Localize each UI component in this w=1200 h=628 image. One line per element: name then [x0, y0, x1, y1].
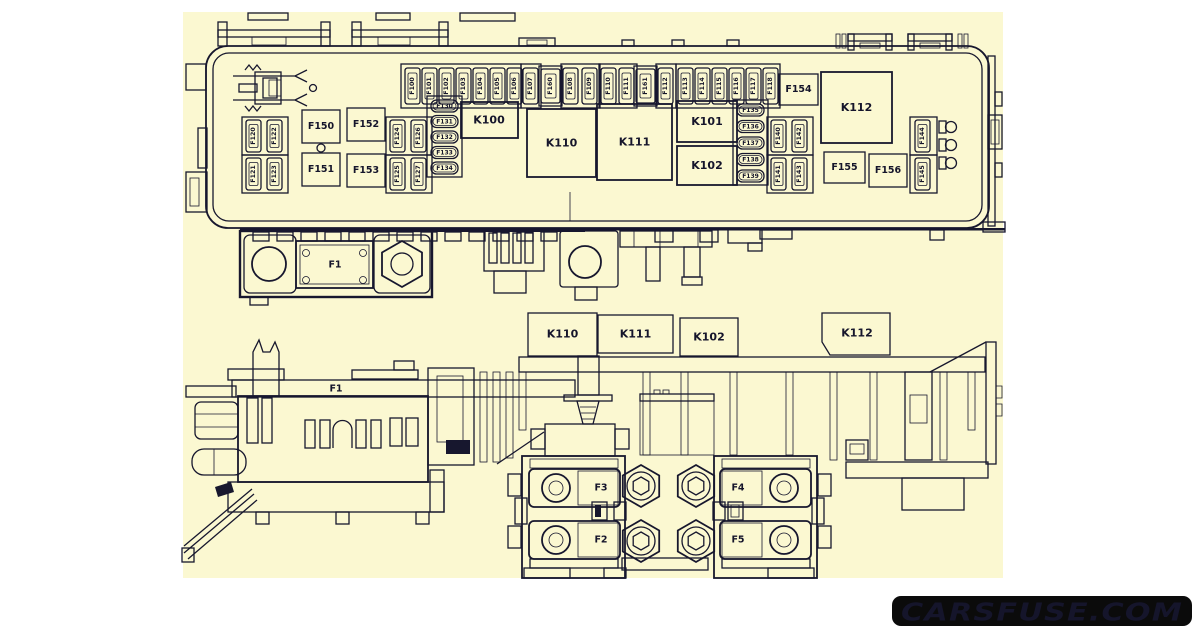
svg-text:F121: F121	[250, 165, 257, 182]
svg-text:F105: F105	[494, 77, 501, 94]
watermark-badge: CARSFUSE.COM	[892, 596, 1192, 627]
relay-k111-label: K111	[619, 136, 651, 149]
svg-text:F118: F118	[767, 77, 774, 94]
svg-text:F131: F131	[436, 119, 453, 126]
svg-text:F116: F116	[733, 77, 740, 95]
midi-fuse-f4-label: F4	[731, 483, 744, 494]
svg-text:F100: F100	[409, 77, 416, 95]
svg-text:F124: F124	[394, 127, 401, 145]
svg-text:F144: F144	[919, 127, 926, 145]
svg-text:F133: F133	[436, 150, 453, 157]
side-relay-k111-label: K111	[620, 328, 652, 341]
svg-text:F106: F106	[511, 77, 518, 95]
svg-text:F113: F113	[682, 77, 689, 94]
svg-text:F142: F142	[796, 127, 803, 144]
svg-text:F161: F161	[642, 77, 649, 94]
svg-text:F115: F115	[716, 77, 723, 94]
fuse-f152-label: F152	[353, 119, 379, 130]
side-relay-k102-label: K102	[693, 331, 725, 344]
svg-text:F114: F114	[699, 77, 706, 95]
svg-text:F141: F141	[775, 165, 782, 182]
svg-text:F126: F126	[415, 127, 422, 145]
fuse-f155-label: F155	[831, 162, 857, 173]
svg-text:F109: F109	[586, 77, 593, 94]
relay-k112-label: K112	[841, 101, 873, 114]
svg-text:F125: F125	[394, 165, 401, 182]
svg-text:F107: F107	[527, 77, 534, 94]
svg-text:F132: F132	[436, 134, 453, 141]
svg-text:F138: F138	[742, 157, 759, 164]
svg-text:F160: F160	[547, 77, 554, 95]
svg-text:F127: F127	[415, 165, 422, 182]
svg-text:F122: F122	[271, 127, 278, 144]
fuse-f154-label: F154	[785, 84, 812, 95]
svg-text:F110: F110	[605, 77, 612, 95]
svg-text:F134: F134	[436, 165, 453, 172]
side-relay-k110-label: K110	[547, 328, 579, 341]
svg-text:F145: F145	[919, 165, 926, 182]
fuse-diagram-page: F120 F122 F121 F123 F150 F151 F152 F153 …	[0, 0, 1200, 628]
relay-k102-label: K102	[691, 159, 723, 172]
svg-text:F135: F135	[742, 107, 759, 114]
svg-text:F139: F139	[742, 173, 759, 180]
svg-text:F111: F111	[623, 77, 630, 94]
watermark-text: CARSFUSE.COM	[901, 598, 1183, 627]
side-relay-k112-label: K112	[841, 327, 873, 340]
midi-fuse-f3-label: F3	[594, 483, 607, 494]
mega-fuse-f1-label: F1	[328, 260, 341, 271]
svg-text:F102: F102	[443, 77, 450, 94]
svg-text:F143: F143	[796, 165, 803, 182]
side-mega-fuse-f1-label: F1	[329, 384, 342, 395]
svg-text:F120: F120	[250, 127, 257, 145]
svg-text:F108: F108	[567, 77, 574, 94]
fuse-box-diagram: F120 F122 F121 F123 F150 F151 F152 F153 …	[0, 0, 1200, 628]
relay-k100-label: K100	[473, 114, 505, 127]
diagram-background	[183, 12, 1003, 578]
svg-text:F101: F101	[426, 77, 433, 94]
fuse-f151-label: F151	[308, 164, 334, 175]
svg-text:F123: F123	[271, 165, 278, 182]
fuse-f150-label: F150	[308, 121, 335, 132]
svg-text:F103: F103	[460, 77, 467, 94]
svg-text:F140: F140	[775, 127, 782, 145]
midi-fuse-f2-label: F2	[594, 535, 607, 546]
fuse-f153-label: F153	[353, 165, 379, 176]
fuse-f156-label: F156	[875, 165, 902, 176]
svg-text:F137: F137	[742, 140, 759, 147]
svg-text:F117: F117	[750, 77, 757, 94]
svg-text:F136: F136	[742, 124, 759, 131]
svg-text:F104: F104	[477, 77, 484, 95]
midi-fuse-f5-label: F5	[731, 535, 744, 546]
svg-text:F112: F112	[662, 77, 669, 94]
relay-k101-label: K101	[691, 115, 723, 128]
relay-k110-label: K110	[546, 137, 578, 150]
